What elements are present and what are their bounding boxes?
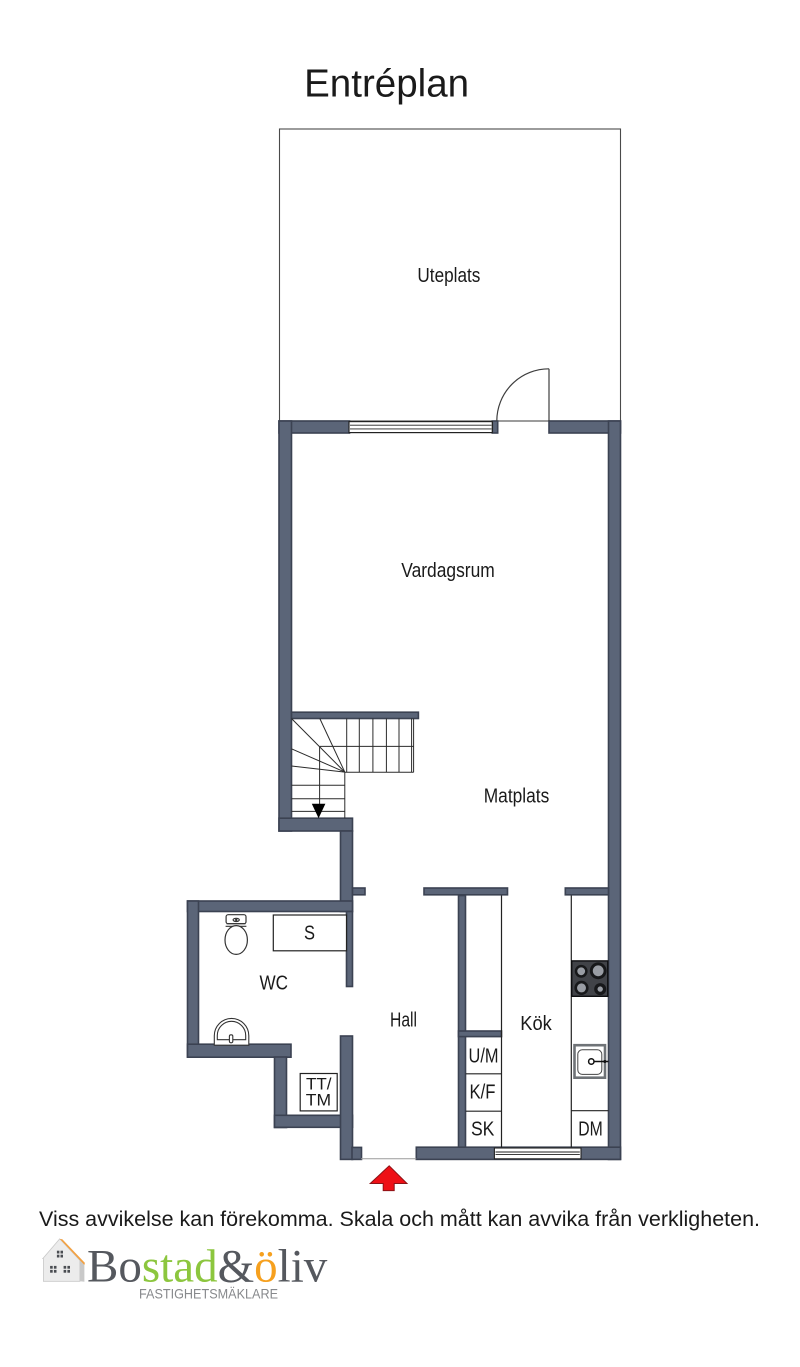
svg-text:TM: TM [306,1091,331,1110]
svg-text:Uteplats: Uteplats [417,265,480,287]
svg-text:Viss avvikelse kan förekomma.: Viss avvikelse kan förekomma. Skala och … [39,1207,760,1231]
svg-text:Hall: Hall [390,1010,417,1032]
svg-text:FASTIGHETSMÄKLARE: FASTIGHETSMÄKLARE [139,1286,278,1302]
svg-text:U/M: U/M [469,1046,499,1068]
svg-text:Matplats: Matplats [484,786,550,808]
svg-text:K/F: K/F [470,1082,496,1104]
svg-text:S: S [304,923,315,945]
svg-text:DM: DM [578,1119,603,1141]
svg-text:WC: WC [259,973,288,995]
svg-text:Vardagsrum: Vardagsrum [401,560,495,582]
svg-text:Entréplan: Entréplan [304,63,469,106]
svg-text:Kök: Kök [520,1013,552,1035]
svg-text:SK: SK [471,1119,495,1141]
